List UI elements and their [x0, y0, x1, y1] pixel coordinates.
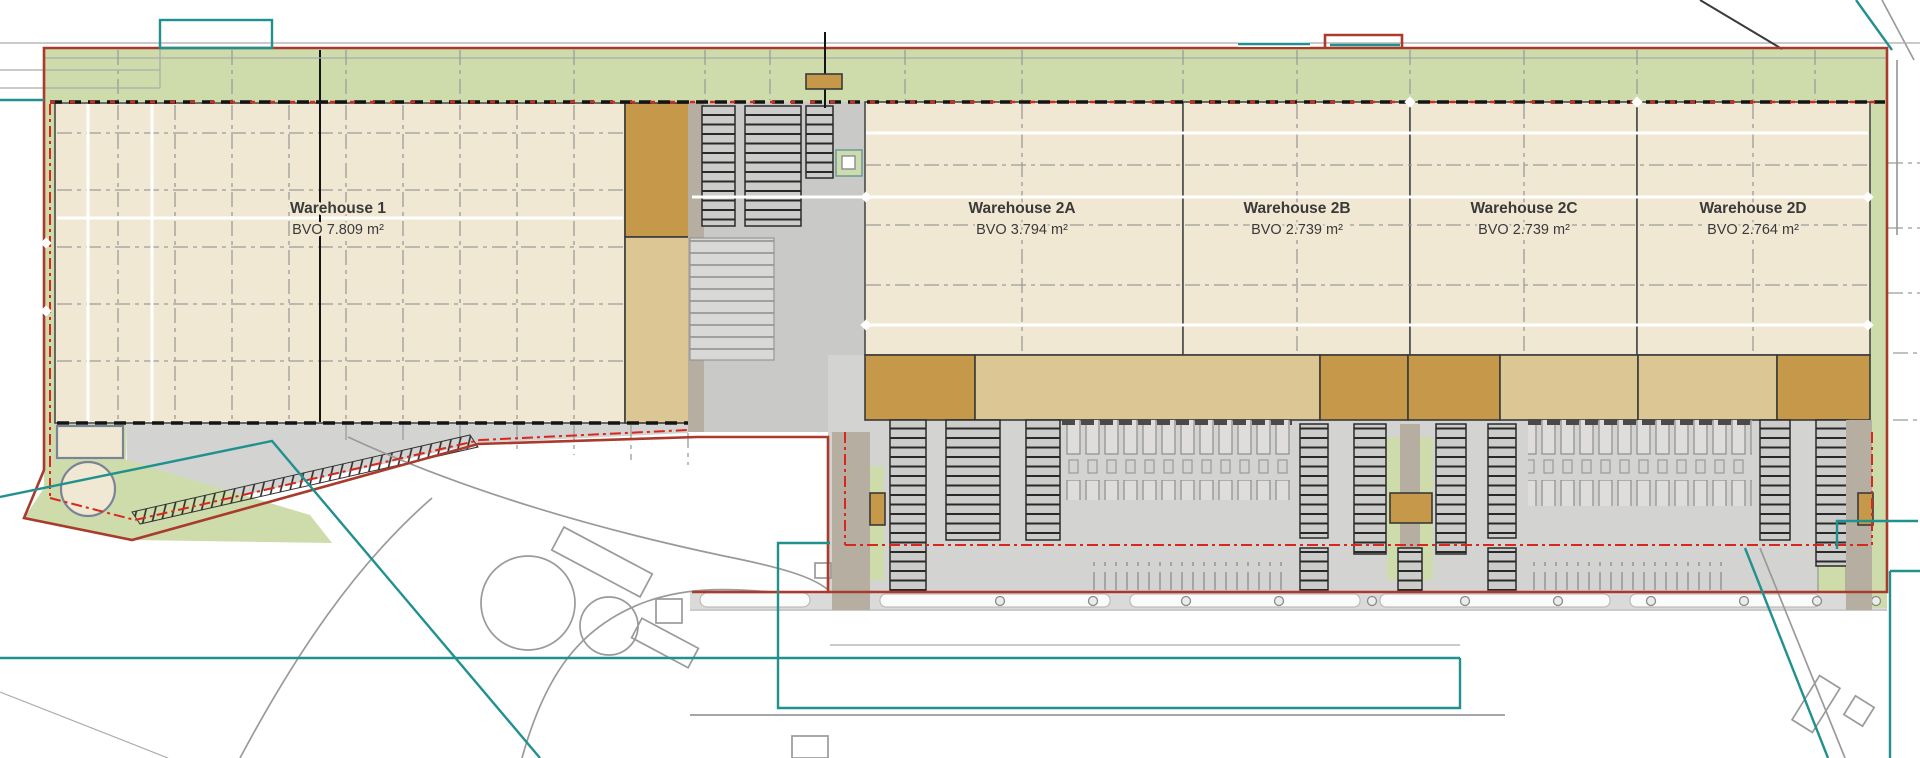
- warehouse-2-canopy-band: [865, 355, 1870, 420]
- dock-pad: [57, 426, 123, 458]
- offsite-gridline-stubs: [1888, 163, 1920, 420]
- warehouse-2b-area: BVO 2.739 m²: [1251, 222, 1343, 238]
- warehouse-1-area: BVO 7.809 m²: [292, 222, 384, 238]
- truck-docks-2a: [1062, 420, 1292, 500]
- crosswalk-center: [1398, 548, 1422, 592]
- boundary-notch-nw: [160, 20, 272, 48]
- roundabout-circle-large: [481, 556, 575, 650]
- entrance-gate-barrier: [806, 74, 842, 89]
- warehouse-2-building: [865, 102, 1870, 420]
- warehouse-2b-label: Warehouse 2B: [1243, 200, 1350, 217]
- warehouse-2d-label: Warehouse 2D: [1699, 200, 1806, 217]
- warehouse-2a-area: BVO 3.794 m²: [976, 222, 1068, 238]
- green-pad-right: [1818, 566, 1846, 592]
- warehouse-2c-area: BVO 2.739 m²: [1478, 222, 1570, 238]
- site-plan: Warehouse 1 BVO 7.809 m² Warehouse 2A BV…: [0, 0, 1920, 758]
- site-plan-drawing: Warehouse 1 BVO 7.809 m² Warehouse 2A BV…: [0, 0, 1920, 758]
- warehouse-1-office-dark: [625, 103, 690, 237]
- warehouse-2c-label: Warehouse 2C: [1470, 200, 1577, 217]
- warehouse-2d-area: BVO 2.764 m²: [1707, 222, 1799, 238]
- warehouse-1-office-light: [625, 237, 690, 423]
- warehouse-2a-label: Warehouse 2A: [968, 200, 1075, 217]
- roundabout-circle-small: [580, 597, 638, 655]
- entrance-drive-left: [832, 432, 870, 610]
- warehouse-1-floor: [55, 103, 625, 423]
- gate-post-center: [1390, 493, 1432, 523]
- gate-post-left: [870, 493, 885, 525]
- truck-docks-2cd: [1528, 420, 1752, 506]
- warehouse-1-label: Warehouse 1: [290, 200, 386, 217]
- entrance-drive-center: [1400, 424, 1420, 548]
